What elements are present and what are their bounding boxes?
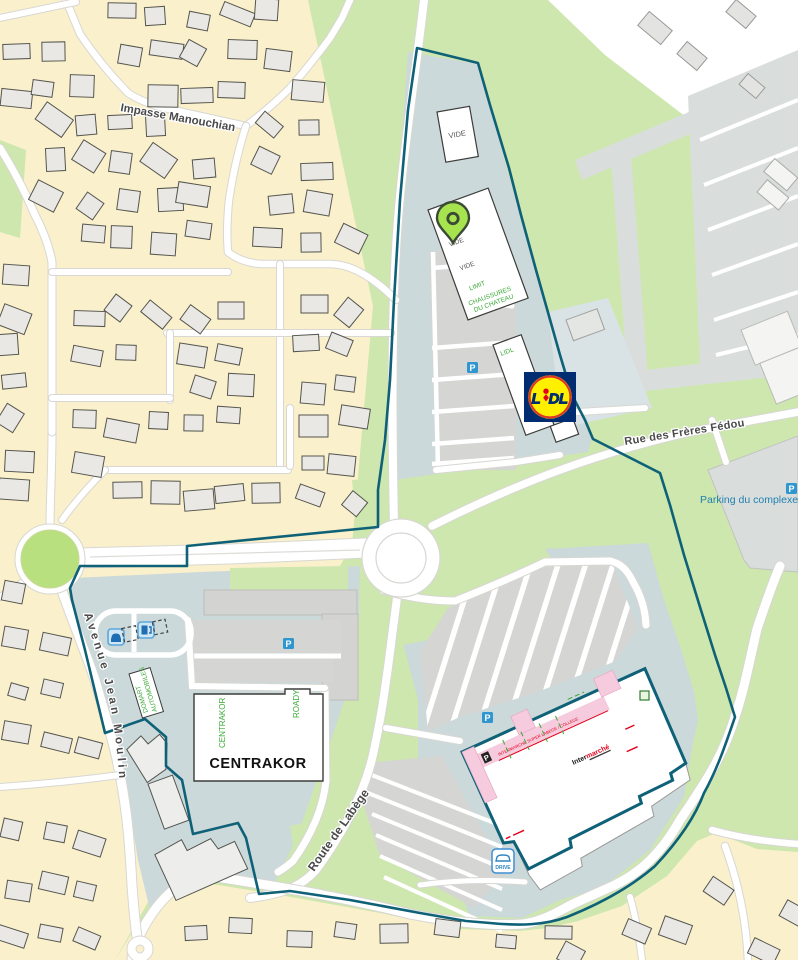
svg-text:CENTRAKOR: CENTRAKOR — [218, 698, 227, 748]
svg-text:DRIVE: DRIVE — [495, 865, 511, 871]
svg-text:DL: DL — [549, 391, 568, 408]
svg-text:P: P — [484, 713, 490, 723]
svg-text:P: P — [285, 639, 291, 649]
svg-text:P: P — [469, 363, 475, 373]
svg-text:CENTRAKOR: CENTRAKOR — [209, 756, 306, 772]
svg-text:P: P — [788, 484, 794, 494]
svg-text:Parking du complexe: Parking du complexe — [700, 494, 798, 506]
svg-text:L: L — [532, 391, 541, 408]
svg-text:ROADY: ROADY — [292, 689, 301, 718]
